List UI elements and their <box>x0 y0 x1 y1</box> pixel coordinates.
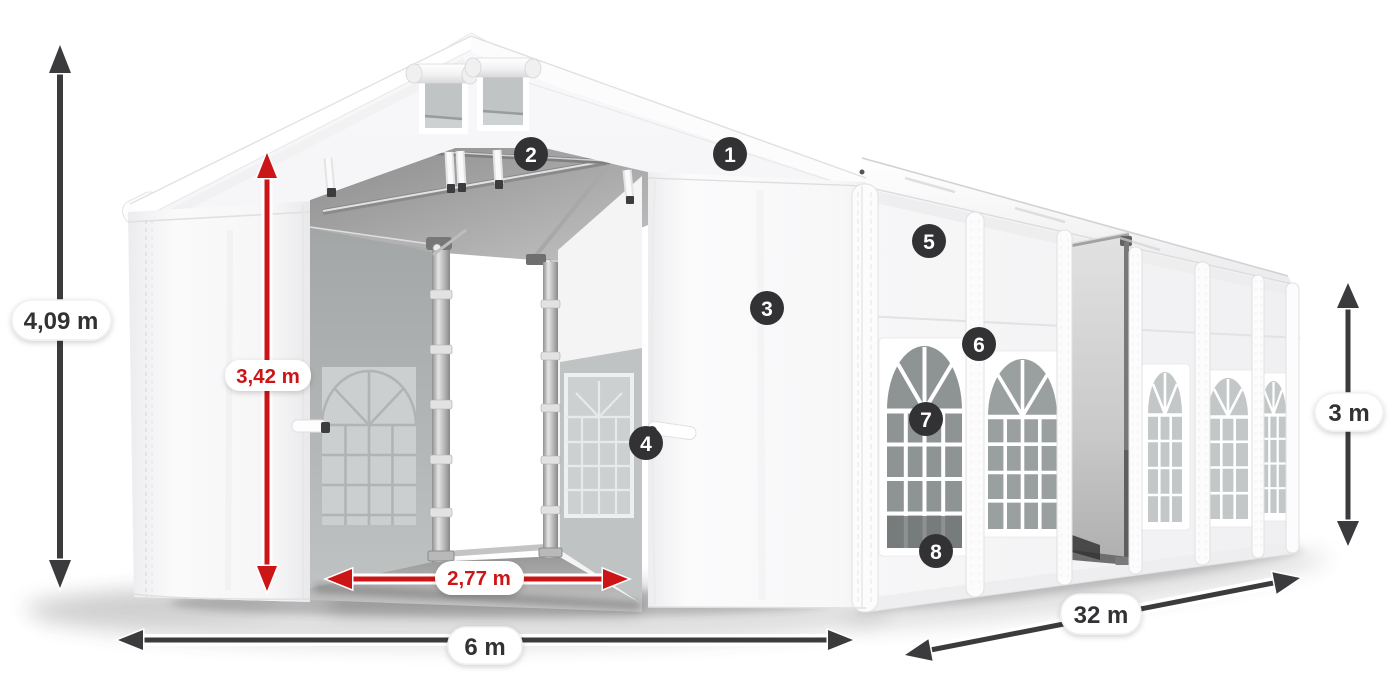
svg-text:3,42 m: 3,42 m <box>236 365 300 388</box>
svg-text:3 m: 3 m <box>1328 400 1369 427</box>
svg-text:7: 7 <box>920 409 932 432</box>
svg-text:6: 6 <box>973 334 985 357</box>
svg-text:2,77 m: 2,77 m <box>447 567 511 590</box>
svg-text:1: 1 <box>724 144 736 167</box>
svg-text:4,09 m: 4,09 m <box>24 308 99 335</box>
svg-text:3: 3 <box>761 298 773 321</box>
svg-text:4: 4 <box>640 433 652 456</box>
svg-text:8: 8 <box>930 541 942 564</box>
svg-text:6 m: 6 m <box>464 634 505 661</box>
svg-text:2: 2 <box>525 144 537 167</box>
svg-text:32 m: 32 m <box>1074 602 1129 629</box>
svg-text:5: 5 <box>923 231 935 254</box>
